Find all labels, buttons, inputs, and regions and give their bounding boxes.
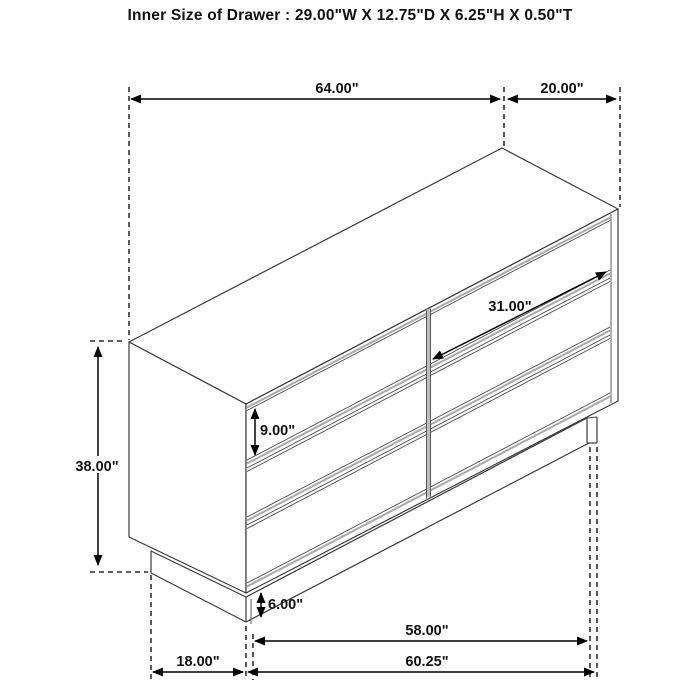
dimension-base-height: 6.00" (261, 593, 303, 617)
dimension-label: 6.00" (268, 597, 303, 613)
base-right-leg-top (587, 417, 597, 418)
dresser-line-drawing: 64.00" 20.00" 38.00" 9.00" 31.00" 6.00" … (0, 0, 700, 700)
dimension-label: 58.00" (405, 623, 448, 639)
dimension-label: 20.00" (540, 81, 583, 97)
dimension-label: 60.25" (405, 654, 448, 670)
dimension-overall-height: 38.00" (70, 347, 125, 565)
dimension-label: 64.00" (315, 81, 358, 97)
dimension-label: 18.00" (176, 654, 219, 670)
dimension-overall-depth: 20.00" (508, 81, 616, 99)
dimension-label: 31.00" (488, 299, 531, 315)
dimension-base-depth: 18.00" (153, 654, 243, 672)
dimension-overall-width: 64.00" (131, 81, 500, 99)
dimension-label: 9.00" (260, 423, 295, 439)
dimension-bottom-width: 60.25" (248, 654, 594, 672)
dimension-diagram: Inner Size of Drawer : 29.00"W X 12.75"D… (0, 0, 700, 700)
drawer-center-divider (427, 309, 431, 499)
dimension-base-width: 58.00" (255, 623, 587, 641)
dimension-label: 38.00" (75, 459, 118, 475)
dresser-body (129, 148, 618, 624)
